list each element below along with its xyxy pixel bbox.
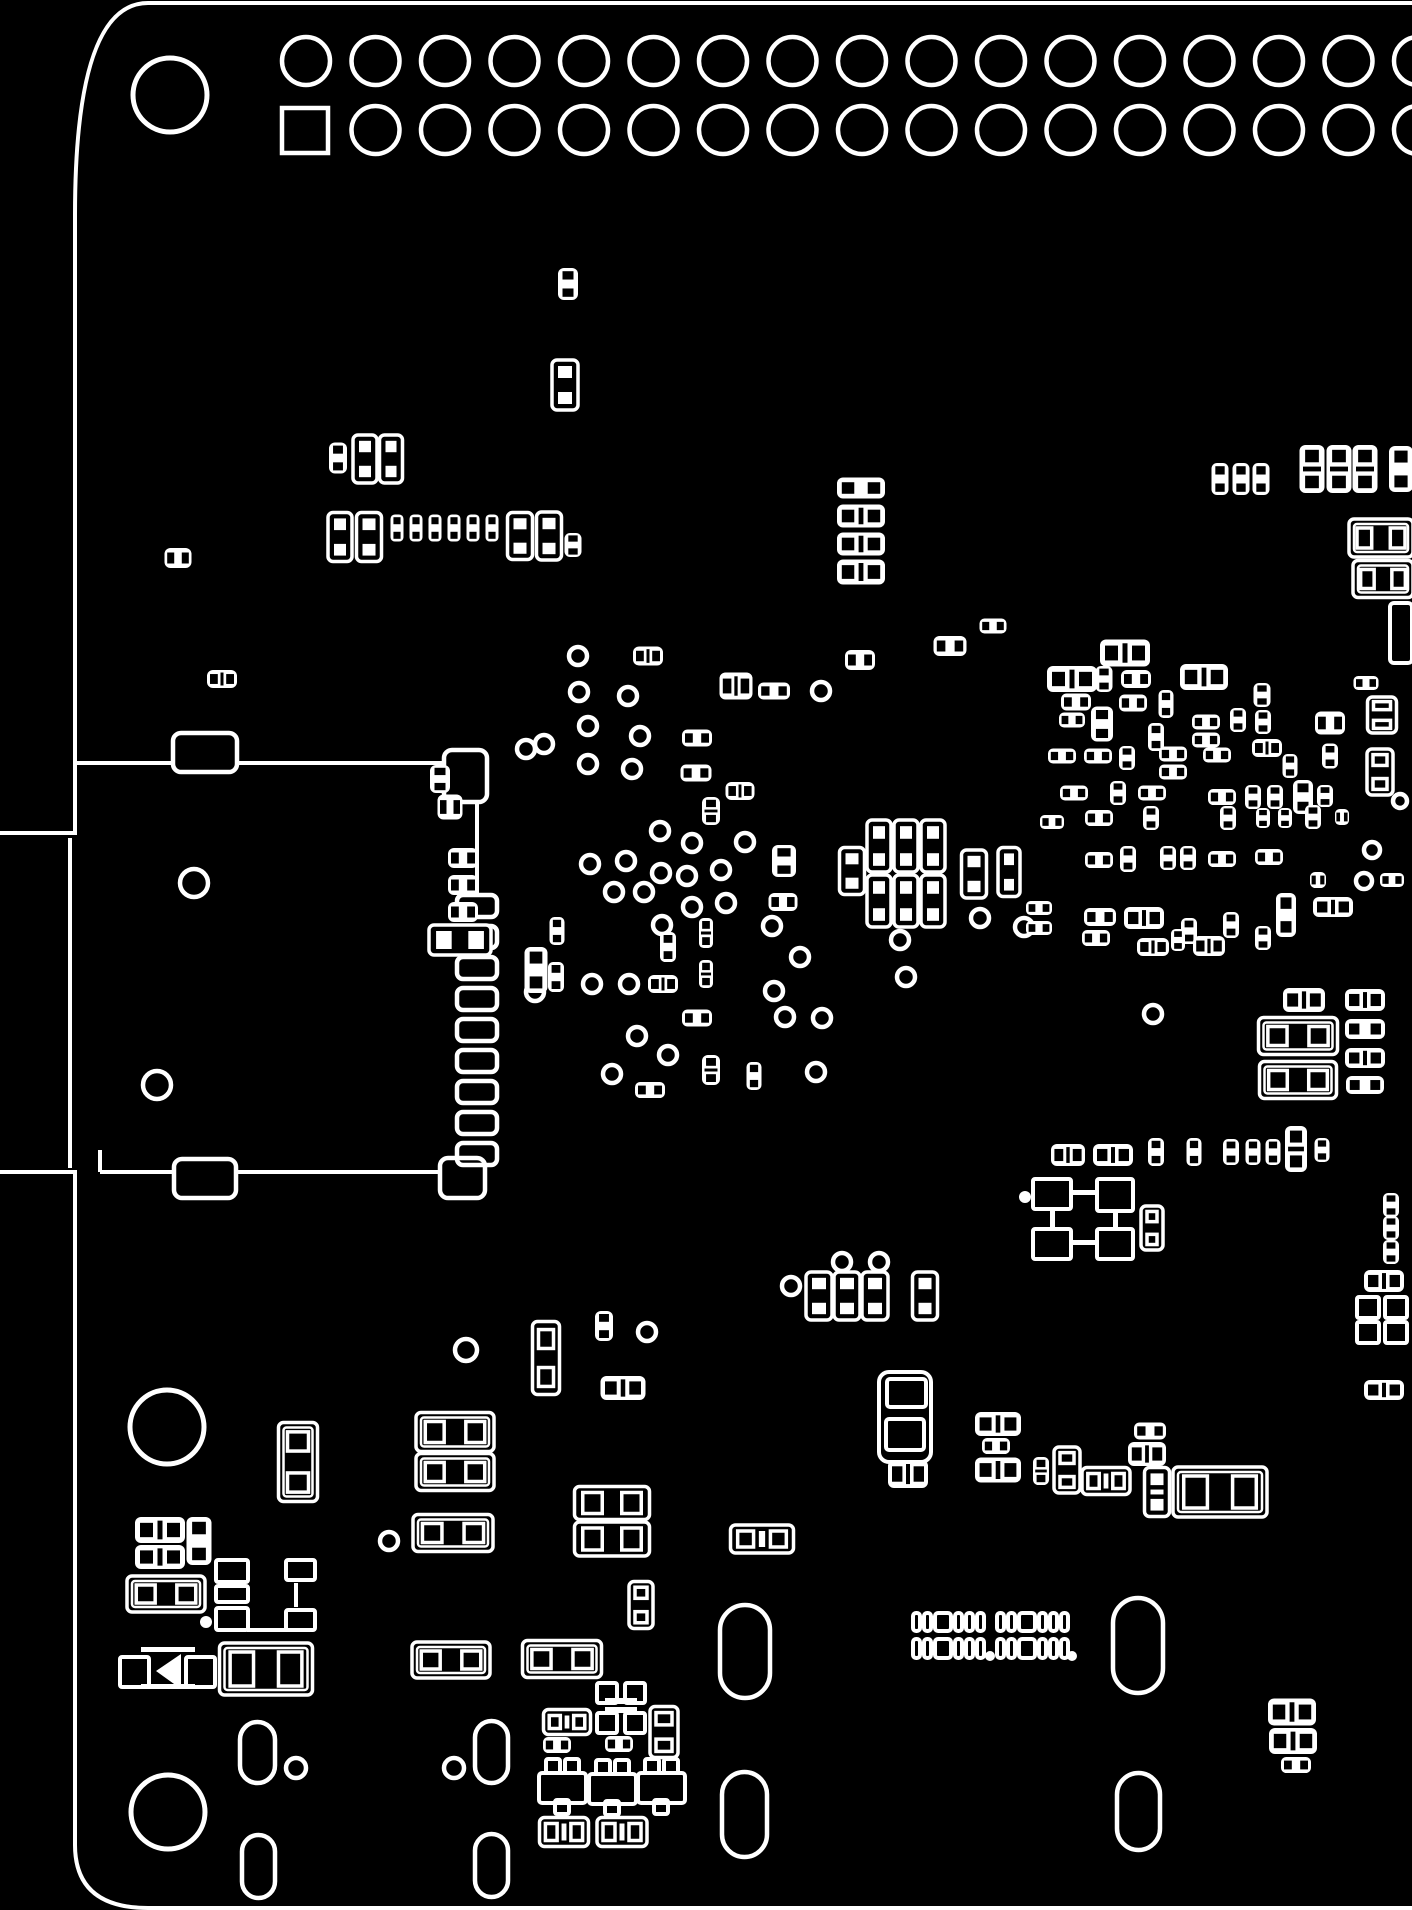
chip-pad [1215,466,1224,474]
chip-pad [553,920,561,927]
component-pad [868,1303,882,1314]
component-pad-center [565,1716,570,1729]
chip-pad [864,655,872,666]
chip-pad [1257,685,1266,691]
component-pad [968,856,981,867]
chip-pad [1274,1734,1286,1748]
component-pad [927,908,939,921]
chip-pad [1317,902,1327,913]
chip-pad [1227,915,1236,922]
chip-pad [1358,450,1372,462]
chip-pad [1055,818,1061,826]
chip-pad [1271,787,1280,793]
chip-pad-center [1070,670,1075,689]
chip-pad-center [1151,941,1154,954]
chip-pad [1318,1153,1326,1159]
chip-pad [1132,1447,1142,1460]
chip-pad [1123,748,1132,754]
chip-pad [1103,856,1110,865]
chip-pad [1258,853,1265,862]
chip-pad [226,674,234,684]
chip-pad-center [662,978,665,991]
component-pad-center [1104,1474,1109,1489]
chip-pad [333,462,343,470]
chip-pad [723,679,732,694]
chip-pad [1096,710,1108,719]
chip-pad [552,965,561,973]
chip-pad [1043,924,1050,932]
chip-pad [1184,861,1193,867]
component-pad [812,1303,826,1314]
chip-pad [1236,466,1245,474]
chip-pad [1099,683,1108,690]
chip-pad [1290,1131,1302,1143]
chip-pad-center [158,1548,163,1565]
chip-pad [1257,698,1266,704]
chip-pad-center [701,973,711,976]
component-pad [868,1278,882,1289]
component-pad [468,931,484,949]
chip-pad-center [701,932,711,935]
chip-pad [1210,718,1217,726]
chip-pad [1339,902,1349,913]
chip-pad [1259,941,1268,947]
chip-pad [1326,746,1335,753]
chip-pad [702,963,710,970]
trace-bar [1113,1211,1118,1229]
chip-pad [1286,756,1294,762]
chip-pad [412,532,419,539]
component-pad [927,826,939,839]
chip-pad [1310,993,1321,1006]
chip-pad [1052,672,1065,686]
chip-pad-center [1382,1273,1386,1289]
chip-pad [1387,1218,1396,1224]
chip-pad-center [705,1069,718,1072]
chip-pad [1085,934,1092,943]
chip-pad [1387,1208,1396,1214]
chip-pad [1154,1426,1162,1435]
chip-pad [1099,669,1108,676]
chip-pad [1140,674,1148,684]
chip-pad [1195,736,1202,744]
chip-pad [1162,750,1169,758]
chip-pad [1119,1149,1129,1161]
chip-pad [1152,726,1161,733]
chip-pad [167,1523,180,1537]
chip-pad [488,517,495,524]
chip-pad [1356,679,1363,687]
chip-pad [210,674,218,684]
sd-connector-tab [174,1159,236,1198]
component-pad [900,826,912,839]
chip-pad [664,935,673,943]
component-pad [514,543,527,554]
chip-pad-center [705,810,718,813]
chip-pad [192,1548,206,1560]
chip-pad [1259,810,1267,815]
chip-pad [1382,876,1388,884]
chip-pad [1281,921,1292,932]
component-pad [873,853,885,866]
chip-pad [440,800,447,814]
chip-pad [702,937,710,945]
chip-pad [842,482,854,494]
fiducial-dot [1019,1191,1031,1203]
component-pad [900,881,912,894]
component-pad [386,441,397,452]
component-pad [558,366,572,378]
chip-pad [1037,1475,1046,1482]
pcb-assembly-drawing [0,0,1412,1910]
chip-pad [568,548,577,554]
chip-pad [167,553,174,564]
fiducial-dot [985,1651,995,1661]
chip-pad [1256,483,1265,491]
chip-pad [1394,475,1407,487]
chip-pad [1164,861,1173,867]
chip-pad [599,1314,609,1322]
chip-pad [1370,1080,1380,1090]
chip-pad [1147,808,1156,814]
chip-pad [431,532,438,539]
chip-pad [1298,783,1309,792]
chip-pad [982,622,989,630]
chip-pad [1190,1156,1198,1163]
chip-pad [700,768,708,777]
component-pad [873,826,885,839]
chip-pad [1259,821,1267,826]
chip-pad-center [1145,1445,1149,1462]
component-pad [968,881,981,892]
component-pad [919,1278,932,1289]
chip-pad [530,976,543,988]
chip-pad [1249,1142,1257,1149]
chip-pad [1390,1275,1400,1287]
chip-pad [702,978,710,985]
chip-pad [702,921,710,929]
chip-pad-center [1142,910,1146,926]
chip-pad [1249,800,1258,806]
chip-pad [706,1058,716,1066]
chip-pad [435,783,446,790]
chip-pad [980,1417,992,1430]
chip-pad [1210,736,1217,744]
chip-pad-center [1363,992,1367,1008]
component-pad-center [1151,1490,1164,1495]
chip-pad [1177,768,1184,776]
chip-pad [701,1013,709,1022]
chip-pad [1185,935,1194,942]
chip-pad [778,686,786,695]
chip-pad [1368,1385,1378,1396]
component-pad [436,931,452,949]
chip-pad [140,1523,153,1537]
pcb-layer-svg [0,0,1412,1910]
trace-bar [1050,1211,1055,1229]
component-pad [514,518,527,529]
component-pad [1151,1473,1164,1485]
sd-connector-tab [173,733,237,772]
chip-pad [1259,725,1268,731]
chip-pad [750,1080,758,1087]
chip-pad [1029,924,1036,932]
chip-pad [450,517,457,524]
chip-pad [1249,1156,1257,1163]
chip-pad [1029,904,1036,912]
chip-pad [1299,1705,1311,1720]
chip-pad [1087,752,1094,760]
chip-pad [1259,928,1268,934]
chip-pad [1195,718,1202,726]
chip-pad [1190,1141,1198,1148]
chip-pad [192,1522,206,1534]
chip-pad [467,880,475,891]
chip-pad [1387,1242,1396,1248]
chip-pad [1141,789,1148,797]
chip-pad [435,768,446,775]
chip-pad [1164,848,1173,854]
trace-bar [1071,1190,1097,1195]
chip-pad [1269,1156,1277,1163]
chip-pad [1051,752,1058,760]
chip-pad [1387,1195,1396,1201]
chip-pad [842,510,854,523]
chip-pad [1004,1417,1016,1430]
chip-pad [1349,1053,1359,1064]
chip-pad [1097,1149,1107,1161]
component-pad [363,518,376,530]
chip-pad [1123,761,1132,767]
component-pad [1004,879,1014,891]
chip-pad-center [859,508,864,525]
chip-pad [1000,1442,1007,1451]
component-pad [900,908,912,921]
chip-pad [599,1330,609,1338]
chip-pad [1124,849,1133,856]
chip-pad [750,1065,758,1072]
chip-pad [1226,855,1233,864]
chip-pad [1224,821,1233,827]
chip-pad [706,815,716,822]
chip-pad [568,535,577,541]
chip-pad-center [1303,467,1321,472]
chip-pad [467,853,475,864]
sd-connector-tab [444,750,487,802]
chip-pad [1185,921,1194,928]
component-pad [919,1303,932,1314]
chip-pad [1080,697,1088,706]
chip-pad [955,641,964,652]
chip-pad [1249,787,1258,793]
component-pad [363,544,376,556]
chip-pad [1215,483,1224,491]
chip-pad [1286,769,1294,775]
chip-pad [454,800,461,814]
chip-pad [1259,712,1268,718]
chip-pad [488,532,495,539]
chip-pad [771,897,779,907]
component-pad [359,466,371,477]
chip-pad [1128,912,1138,924]
chip-pad [1305,476,1319,488]
chip-pad [638,1086,646,1095]
chip-pad [1271,800,1280,806]
chip-pad [706,1074,716,1082]
chip-pad [1140,942,1148,952]
chip-pad [1004,1463,1016,1477]
chip-pad [605,1381,617,1394]
chip-pad [1079,672,1092,686]
chip-pad [937,641,946,652]
chip-pad [1368,1275,1378,1287]
chip-pad [777,865,790,873]
chip-pad [1236,483,1245,491]
chip-pad [1227,1142,1236,1149]
chip-pad [1326,760,1335,767]
chip-pad [741,679,750,694]
chip-pad [1371,1024,1381,1035]
component-pad [812,1278,826,1289]
component-pad [927,881,939,894]
chip-pad [1114,796,1123,802]
chip-pad [1300,1761,1308,1770]
chip-pad [1185,670,1197,684]
chip-pad [1349,994,1359,1006]
chip-pad-center [1291,1732,1296,1751]
chip-pad [1122,698,1129,707]
component-pad [873,881,885,894]
chip-pad [1156,789,1163,797]
chip-pad [546,1741,553,1750]
trace-bar [141,1684,195,1689]
chip-pad-center [1288,1147,1304,1152]
chip-pad [167,1550,180,1563]
chip-pad [1152,741,1161,748]
chip-pad [684,768,692,777]
chip-pad [1309,820,1318,826]
component-pad-center [759,1531,765,1547]
component-pad [1151,1499,1164,1511]
component-pad [359,441,371,452]
chip-pad [1224,808,1233,814]
chip-pad [1332,450,1346,462]
chip-pad-center [1207,939,1210,953]
chip-pad [1320,876,1324,885]
chip-pad [1318,717,1326,730]
chip-pad [1227,929,1236,936]
trace-bar [141,1647,195,1652]
chip-pad [842,538,854,551]
chip-pad [1042,818,1048,826]
chip-pad [652,651,660,661]
chip-pad [1334,717,1342,730]
chip-pad-center [1266,742,1269,755]
chip-pad [530,952,543,964]
chip-pad [1371,994,1381,1006]
chip-pad-center [1330,467,1348,472]
chip-pad [1137,698,1144,707]
chip-pad [1063,789,1070,797]
component-pad [543,543,556,554]
chip-pad [1174,943,1182,949]
chip-pad [1370,679,1377,687]
chip-pad [1234,710,1243,716]
chip-pad [1281,810,1289,815]
chip-pad [1100,934,1107,943]
chip-pad [997,622,1004,630]
chip-pad [848,655,856,666]
chip-pad [451,853,459,864]
chip-pad [1350,1080,1360,1090]
chip-pad [1344,813,1348,822]
chip-pad [1387,1255,1396,1261]
chip-pad-center [734,676,737,695]
chip-pad [1312,876,1316,885]
chip-pad [1255,743,1263,753]
chip-pad [1256,466,1265,474]
trace-bar [605,1707,637,1713]
chip-pad [393,532,400,539]
chip-pad [1273,1705,1285,1720]
chip-pad [1287,993,1298,1006]
chip-pad [1227,1156,1236,1163]
chip-pad [469,532,476,539]
chip-pad [629,1381,641,1394]
chip-pad [1300,1734,1312,1748]
chip-pad [1271,743,1279,753]
chip-pad [868,482,880,494]
chip-pad-center [221,673,224,686]
chip-pad [1305,450,1319,462]
chip-pad [892,1466,902,1481]
chip-pad [842,565,854,579]
chip-pad-center [1035,1470,1047,1473]
chip-pad [1054,1149,1063,1161]
chip-pad [1390,1385,1400,1396]
chip-pad [1152,1141,1161,1148]
chip-pad [868,510,880,523]
chip-pad [1105,646,1118,661]
component-pad [873,908,885,921]
chip-pad [1321,787,1330,793]
chip-pad [1066,752,1073,760]
chip-pad [1281,897,1292,908]
chip-pad [744,786,752,796]
component-pad [840,1278,854,1289]
component-pad [558,392,572,404]
chip-pad-center [1290,1702,1295,1721]
chip-pad [1213,941,1221,952]
chip-pad [1124,674,1132,684]
component-pad [543,518,556,529]
chip-pad [1073,1149,1082,1161]
chip-pad [552,981,561,989]
chip-pad [1196,941,1204,952]
chip-pad [1211,855,1218,864]
chip-pad-center [1302,991,1306,1008]
chip-pad [1321,799,1330,805]
component-pad [334,544,346,556]
chip-pad [1174,931,1182,937]
chip-pad [563,288,574,296]
chip-pad [868,565,880,579]
chip-pad [1103,814,1110,823]
chip-pad [1269,1142,1277,1149]
chip-pad-center [1111,1147,1115,1163]
chip-pad [431,517,438,524]
chip-pad [787,897,795,907]
